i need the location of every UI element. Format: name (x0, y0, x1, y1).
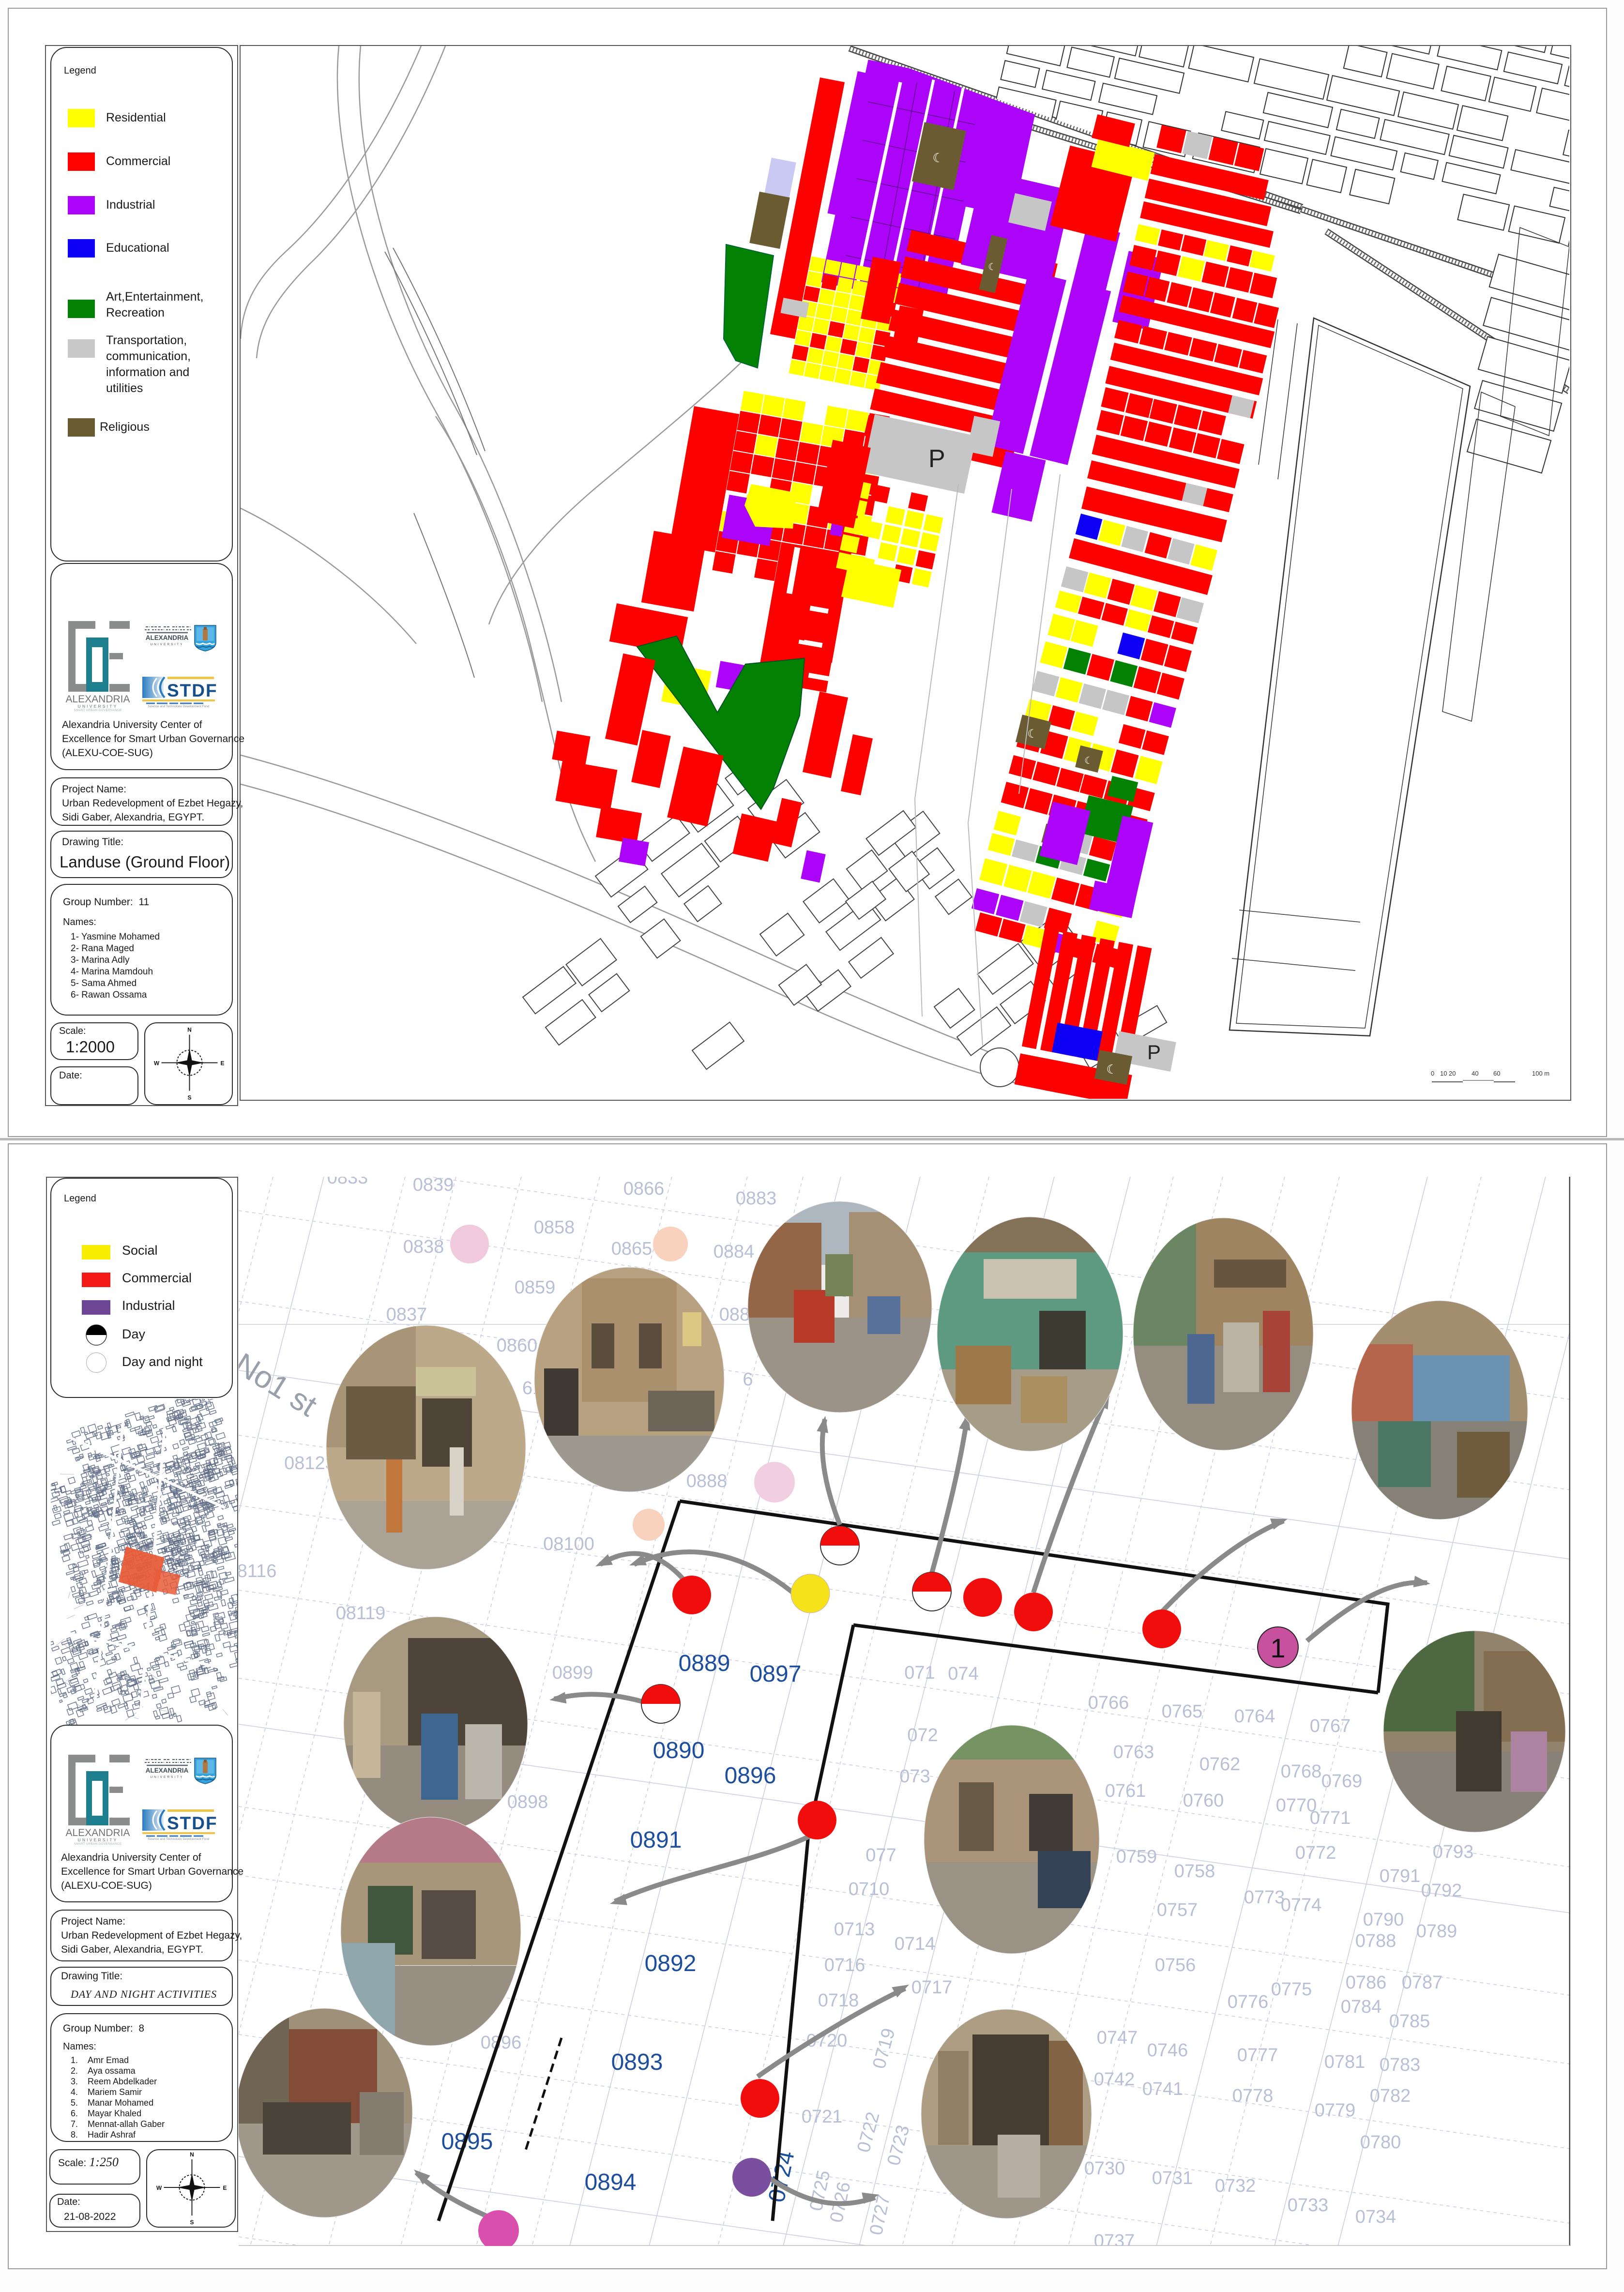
svg-text:0789: 0789 (1416, 1921, 1457, 1942)
svg-text:0759: 0759 (1116, 1847, 1157, 1867)
svg-text:0788: 0788 (1355, 1931, 1396, 1951)
svg-text:071: 071 (904, 1663, 935, 1683)
svg-text:☾: ☾ (932, 151, 943, 165)
svg-text:60: 60 (1493, 1070, 1500, 1077)
svg-text:08100: 08100 (543, 1534, 594, 1554)
svg-text:0763: 0763 (1113, 1742, 1154, 1762)
svg-text:0742: 0742 (1094, 2069, 1135, 2090)
svg-text:0779: 0779 (1315, 2100, 1356, 2121)
svg-text:UNIVERSITY: UNIVERSITY (150, 643, 183, 646)
svg-text:0776: 0776 (1228, 1992, 1269, 2012)
svg-text:P: P (928, 445, 945, 473)
svg-text:0833: 0833 (327, 1177, 368, 1188)
svg-text:0866: 0866 (623, 1179, 665, 1199)
svg-text:0757: 0757 (1157, 1900, 1198, 1920)
svg-text:0758: 0758 (1174, 1861, 1215, 1882)
svg-text:☾: ☾ (1106, 1062, 1117, 1077)
svg-text:0775: 0775 (1271, 1979, 1312, 2000)
svg-text:0714: 0714 (895, 1934, 936, 1954)
svg-text:0778: 0778 (1232, 2086, 1274, 2106)
svg-text:072: 072 (907, 1725, 938, 1746)
svg-text:ALEXANDRIA: ALEXANDRIA (65, 1827, 130, 1838)
svg-text:0718: 0718 (818, 1990, 859, 2011)
svg-text:0781: 0781 (1324, 2052, 1366, 2072)
svg-text:40: 40 (1472, 1070, 1478, 1077)
svg-text:0760: 0760 (1183, 1791, 1224, 1811)
svg-text:0767: 0767 (1310, 1716, 1351, 1736)
svg-text:0786: 0786 (1346, 1973, 1387, 1993)
svg-text:077: 077 (865, 1845, 896, 1866)
svg-text:20: 20 (1449, 1070, 1456, 1077)
svg-text:STDF: STDF (167, 1813, 216, 1833)
svg-text:0899: 0899 (552, 1663, 593, 1683)
svg-text:Science and Technology Develop: Science and Technology Development Fund (148, 705, 209, 707)
svg-text:SMART URBAN GOVERNANCE: SMART URBAN GOVERNANCE (74, 1843, 122, 1845)
svg-text:0787: 0787 (1402, 1973, 1443, 1993)
svg-text:0790: 0790 (1363, 1910, 1404, 1930)
svg-text:0838: 0838 (403, 1237, 444, 1257)
svg-text:0898: 0898 (507, 1792, 548, 1812)
svg-text:0761: 0761 (1105, 1781, 1146, 1801)
svg-text:0785: 0785 (1389, 2011, 1430, 2032)
svg-text:0762: 0762 (1199, 1754, 1241, 1775)
svg-text:0746: 0746 (1147, 2040, 1188, 2061)
svg-text:W: W (156, 2185, 162, 2191)
svg-text:E: E (220, 1060, 224, 1067)
svg-text:N: N (187, 1027, 192, 1033)
svg-text:0791: 0791 (1380, 1866, 1421, 1886)
svg-text:0888: 0888 (686, 1471, 728, 1491)
svg-text:0890: 0890 (653, 1738, 705, 1763)
svg-text:W: W (154, 1060, 160, 1067)
svg-text:10: 10 (1440, 1070, 1447, 1077)
svg-text:0792: 0792 (1421, 1881, 1462, 1901)
svg-text:P: P (1147, 1041, 1161, 1063)
svg-text:0756: 0756 (1155, 1955, 1196, 1975)
svg-text:0891: 0891 (630, 1827, 682, 1853)
svg-text:0883: 0883 (736, 1188, 777, 1209)
svg-text:0897: 0897 (750, 1661, 802, 1687)
svg-text:0858: 0858 (534, 1217, 575, 1238)
svg-text:0764: 0764 (1234, 1706, 1275, 1727)
svg-text:0731: 0731 (1152, 2168, 1193, 2188)
svg-text:UNIVERSITY: UNIVERSITY (77, 704, 118, 709)
svg-text:0837: 0837 (386, 1305, 427, 1325)
svg-text:0741: 0741 (1142, 2079, 1184, 2099)
svg-text:0765: 0765 (1162, 1701, 1203, 1722)
svg-text:0894: 0894 (585, 2170, 637, 2195)
svg-text:ALEXANDRIA: ALEXANDRIA (146, 1767, 189, 1774)
svg-text:E: E (223, 2185, 227, 2191)
svg-text:☾: ☾ (1027, 728, 1038, 741)
svg-text:ALEXANDRIA: ALEXANDRIA (65, 694, 130, 705)
svg-text:0: 0 (1431, 1070, 1434, 1077)
svg-text:☾: ☾ (988, 262, 997, 273)
svg-text:0771: 0771 (1310, 1808, 1351, 1828)
svg-text:UNIVERSITY: UNIVERSITY (77, 1837, 118, 1842)
svg-text:0710: 0710 (849, 1879, 890, 1899)
svg-text:0733: 0733 (1288, 2195, 1329, 2216)
svg-text:0747: 0747 (1097, 2028, 1138, 2048)
svg-text:074: 074 (948, 1664, 978, 1684)
svg-text:0766: 0766 (1088, 1693, 1129, 1713)
svg-text:0859: 0859 (515, 1277, 556, 1298)
svg-text:100 m: 100 m (1532, 1070, 1549, 1077)
svg-text:0734: 0734 (1355, 2207, 1396, 2227)
svg-text:08119: 08119 (336, 1603, 386, 1624)
svg-text:0889: 0889 (679, 1651, 730, 1676)
svg-text:N: N (190, 2151, 194, 2158)
svg-text:☾: ☾ (1084, 756, 1093, 766)
svg-text:0780: 0780 (1360, 2132, 1401, 2153)
svg-text:6: 6 (743, 1369, 753, 1390)
svg-text:0769: 0769 (1321, 1771, 1363, 1791)
svg-text:0860: 0860 (497, 1336, 538, 1356)
svg-text:0893: 0893 (611, 2049, 663, 2075)
svg-text:0892: 0892 (645, 1951, 697, 1976)
svg-text:S: S (187, 1094, 191, 1101)
svg-text:Science and Technology Develop: Science and Technology Development Fund (148, 1837, 209, 1840)
svg-text:0884: 0884 (713, 1242, 755, 1262)
svg-text:0774: 0774 (1281, 1895, 1322, 1915)
svg-text:0783: 0783 (1380, 2055, 1421, 2075)
svg-text:0865: 0865 (611, 1239, 653, 1259)
svg-text:0782: 0782 (1370, 2086, 1411, 2106)
svg-text:0773: 0773 (1244, 1887, 1285, 1908)
svg-text:0793: 0793 (1433, 1842, 1474, 1862)
svg-text:0713: 0713 (834, 1919, 875, 1940)
svg-text:STDF: STDF (167, 681, 216, 700)
svg-text:0772: 0772 (1295, 1843, 1336, 1863)
svg-text:0721: 0721 (802, 2107, 843, 2127)
svg-text:UNIVERSITY: UNIVERSITY (150, 1776, 183, 1779)
svg-text:0716: 0716 (824, 1955, 865, 1975)
svg-text:SMART URBAN GOVERNANCE: SMART URBAN GOVERNANCE (74, 709, 122, 711)
svg-text:0737: 0737 (1094, 2231, 1135, 2246)
svg-text:0732: 0732 (1215, 2176, 1256, 2196)
svg-text:0730: 0730 (1084, 2158, 1125, 2179)
svg-text:1: 1 (1270, 1633, 1285, 1663)
svg-text:073: 073 (899, 1766, 930, 1787)
svg-text:ALEXANDRIA: ALEXANDRIA (146, 634, 189, 641)
svg-text:S: S (190, 2219, 194, 2226)
svg-text:0777: 0777 (1237, 2045, 1278, 2065)
svg-text:0839: 0839 (413, 1177, 454, 1195)
svg-text:0768: 0768 (1281, 1761, 1322, 1782)
svg-text:0717: 0717 (911, 1977, 953, 1998)
svg-text:08116: 08116 (239, 1561, 276, 1581)
svg-text:0784: 0784 (1341, 1997, 1382, 2017)
svg-text:0896: 0896 (725, 1763, 776, 1789)
